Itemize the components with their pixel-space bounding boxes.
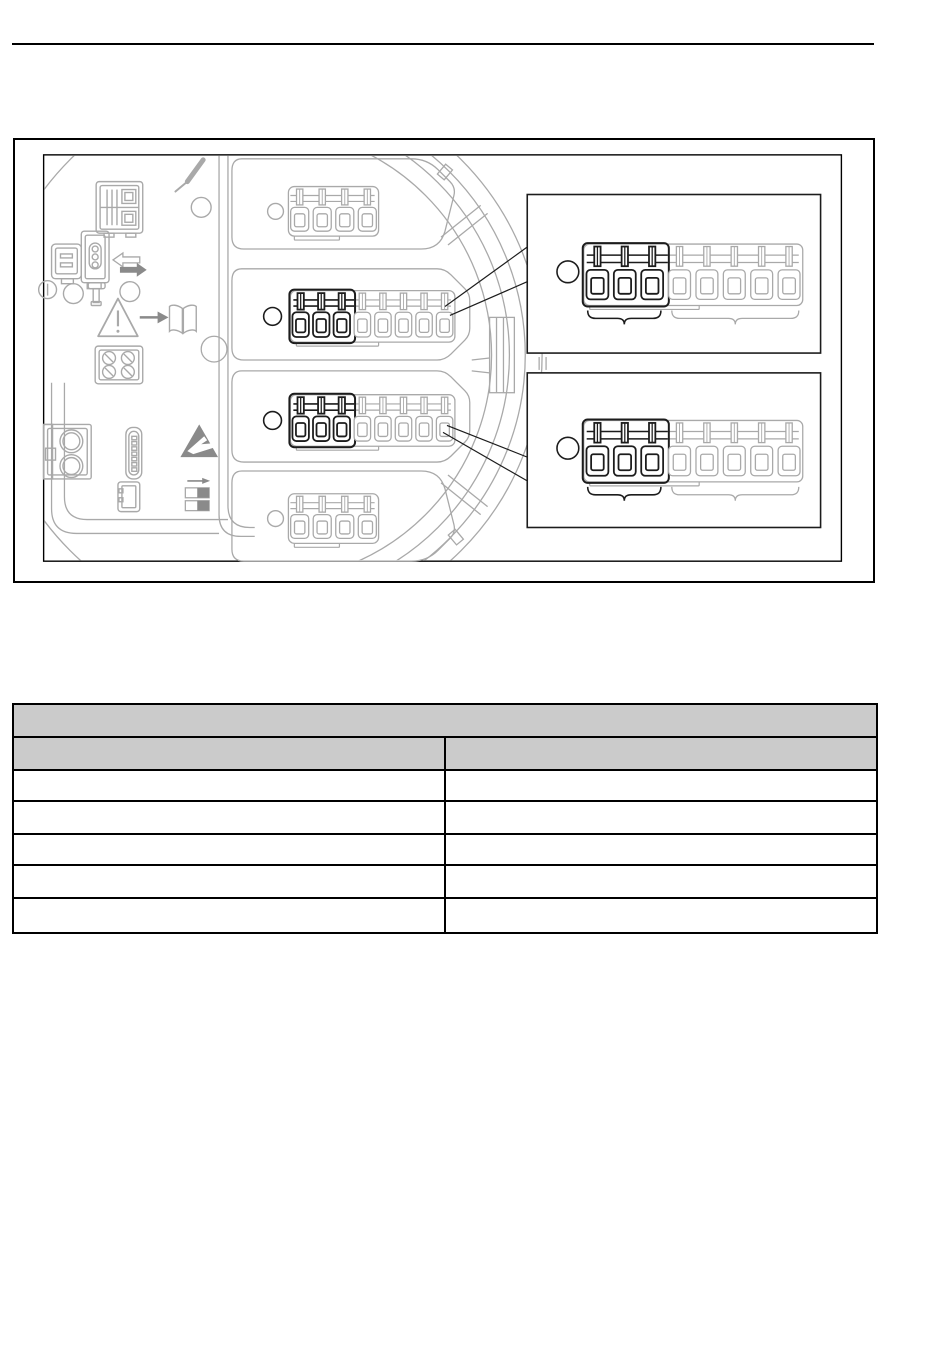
table-col-header-2 (445, 737, 877, 770)
table-row (13, 834, 877, 865)
table-col-header-1 (13, 737, 445, 770)
middle-terminal-block (289, 290, 454, 346)
terminal-assignment-table (12, 703, 878, 934)
table-row (13, 865, 877, 898)
lower-terminal-block (289, 394, 454, 450)
page-header-rule (12, 43, 874, 45)
table-title-cell (13, 704, 877, 737)
table-row (13, 770, 877, 801)
table-row (13, 898, 877, 933)
open-book-icon (169, 305, 196, 333)
figure-frame (13, 138, 875, 583)
figure-caption (13, 590, 873, 690)
terminal-compartment-drawing (15, 140, 873, 581)
document-page (0, 0, 950, 1369)
table-row (13, 801, 877, 834)
bottom-connector-block (288, 494, 378, 548)
top-connector-block (288, 187, 378, 241)
